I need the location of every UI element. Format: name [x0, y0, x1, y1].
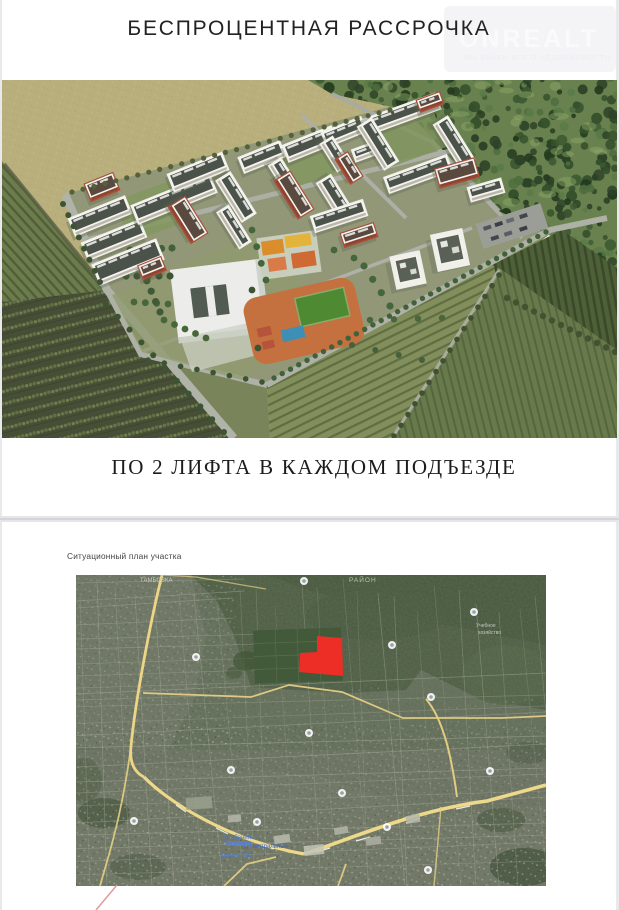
svg-text:рынок АЗС: рынок АЗС	[222, 853, 253, 859]
svg-text:Учебное: Учебное	[476, 623, 496, 629]
svg-text:РАЙОН: РАЙОН	[349, 575, 377, 584]
svg-text:ул. Ленина: ул. Ленина	[224, 835, 255, 841]
svg-text:ТАМБОВКА: ТАМБОВКА	[140, 578, 173, 584]
svg-text:хозяйство: хозяйство	[478, 629, 501, 636]
